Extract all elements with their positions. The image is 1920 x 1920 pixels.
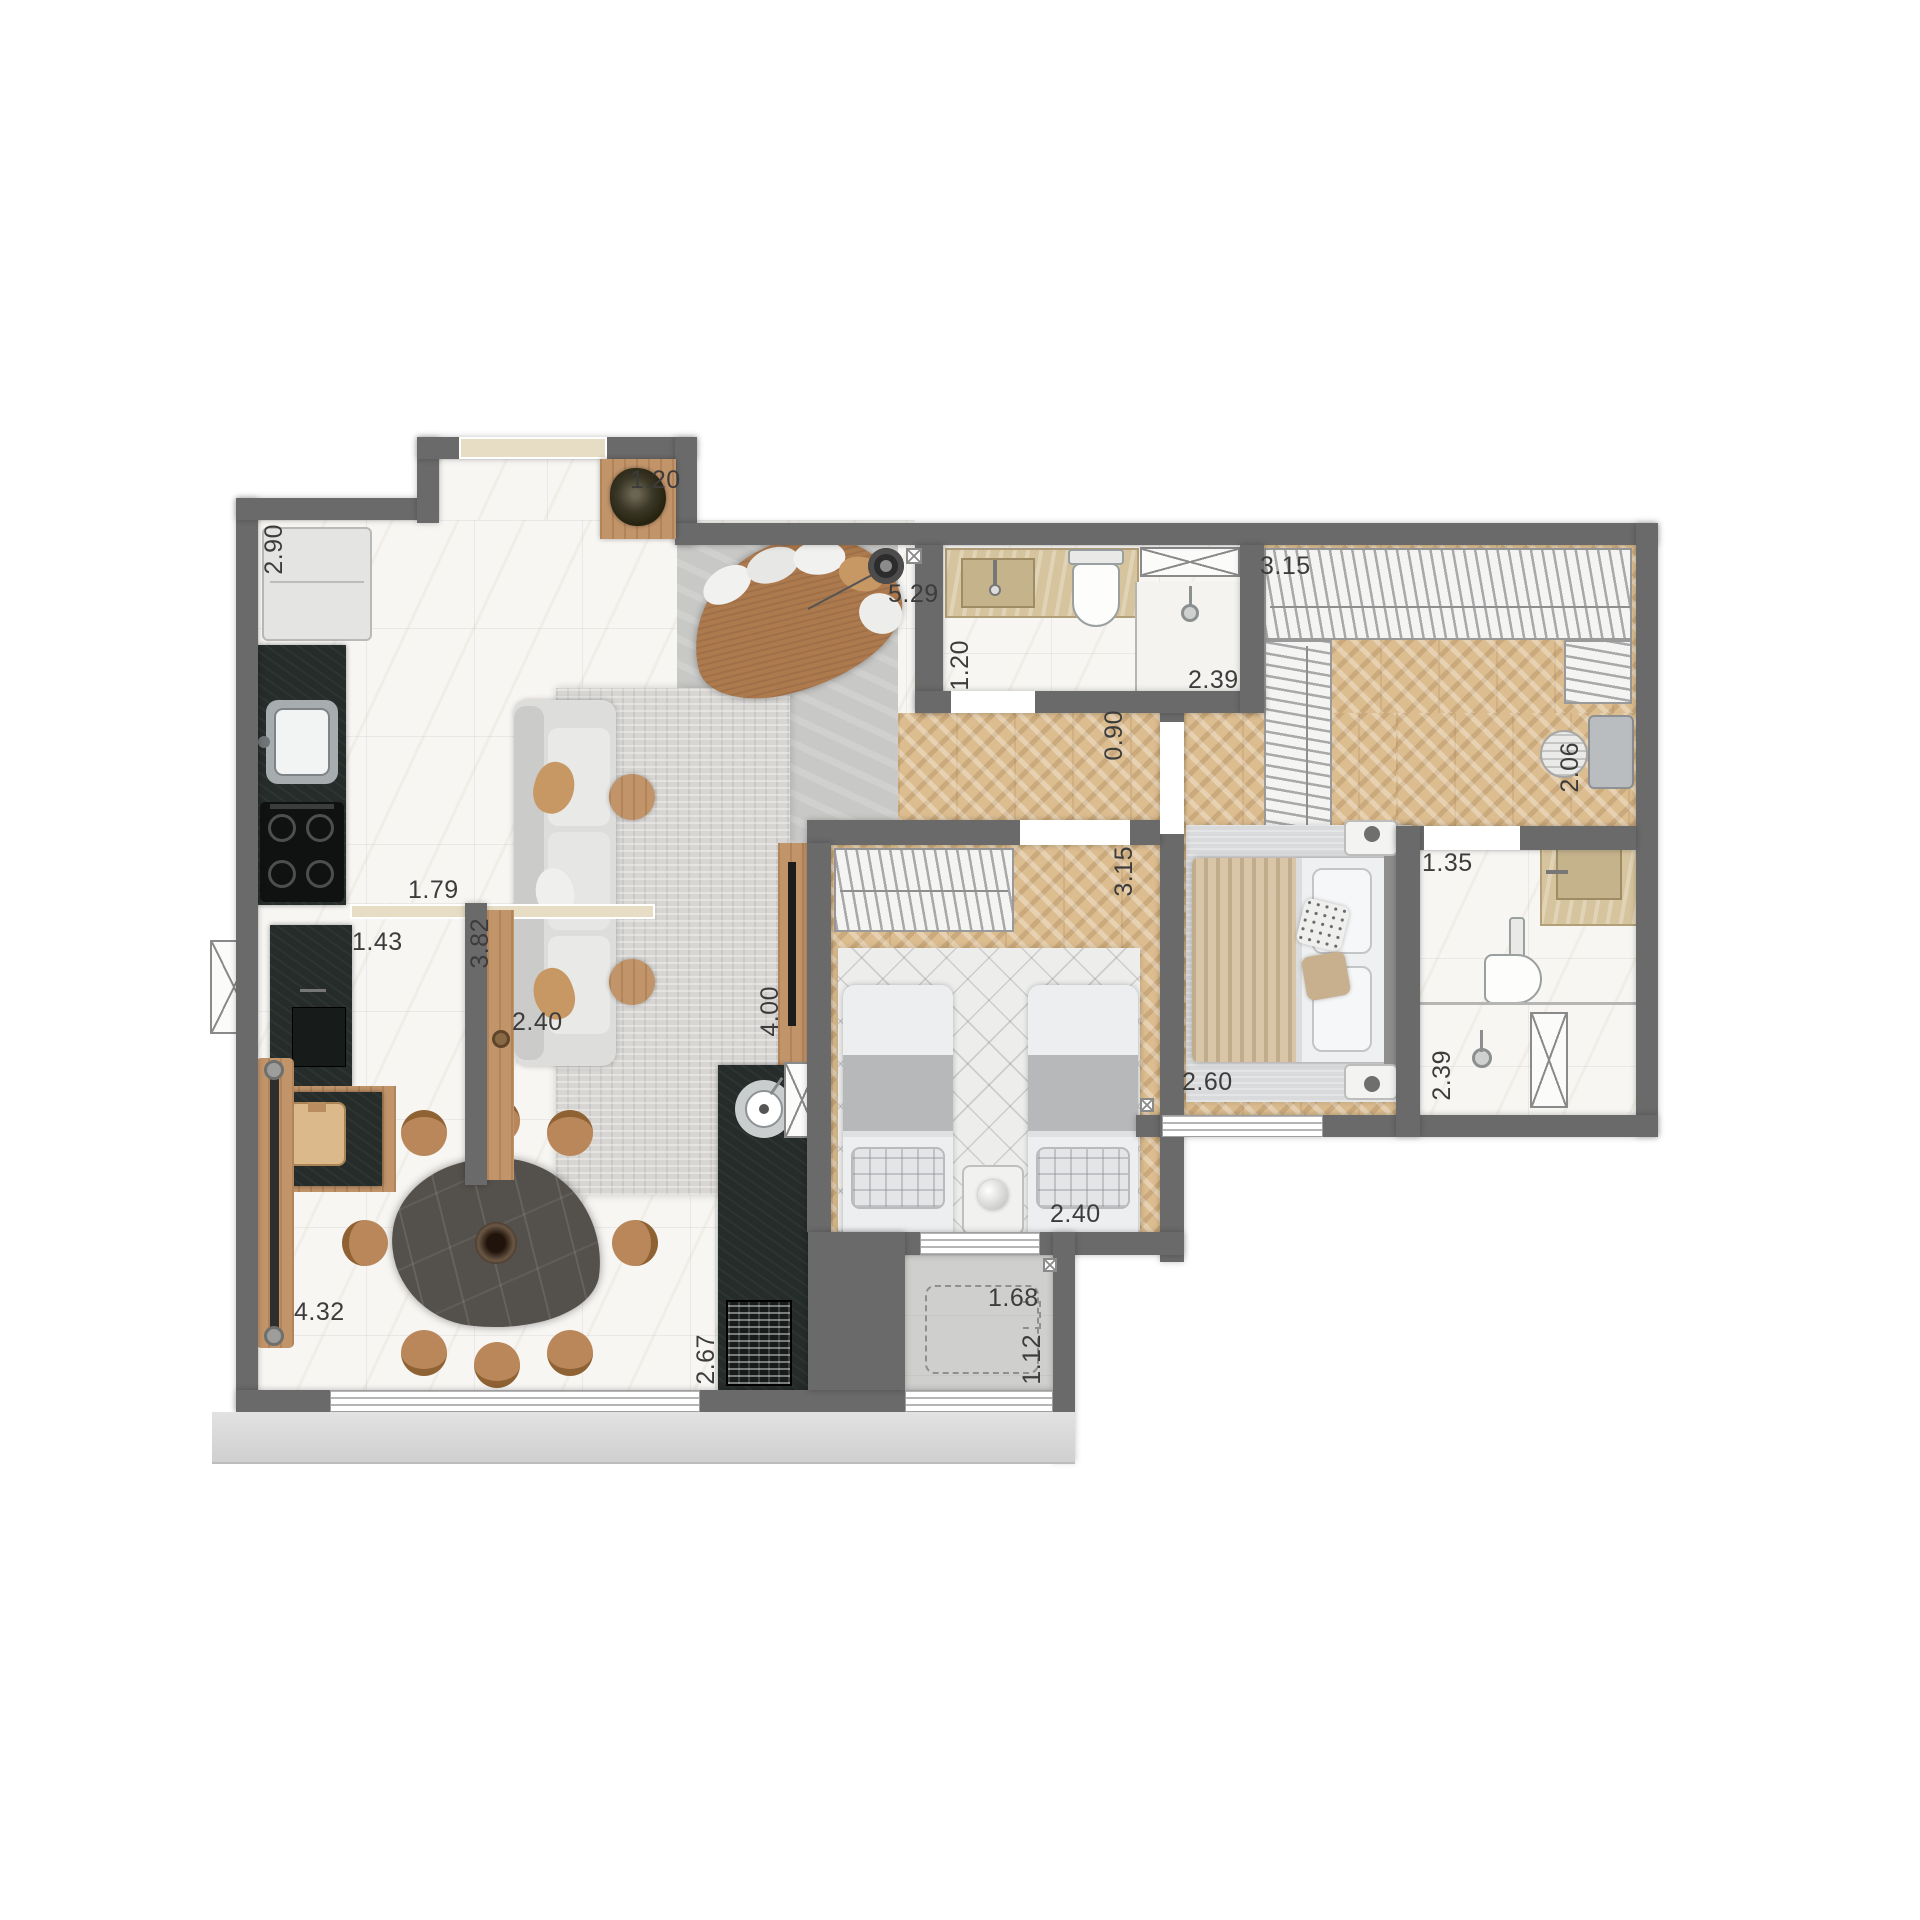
toilet-bowl	[1072, 563, 1120, 627]
dining-chair	[342, 1220, 388, 1266]
ironing-shirt-icon	[288, 1102, 346, 1166]
stove-icon	[260, 802, 344, 902]
closet-top-band	[1264, 548, 1632, 640]
shower-glass	[1420, 1002, 1636, 1005]
dim-label: 1.79	[408, 876, 459, 905]
dim-label: 3.15	[1260, 552, 1311, 581]
desk	[1588, 715, 1634, 789]
dim-label: 2.39	[1188, 666, 1239, 695]
dining-chair	[547, 1110, 593, 1156]
wall	[236, 498, 258, 1412]
bedroom2-door	[1020, 820, 1130, 845]
tan-cushion	[1301, 951, 1352, 1002]
dim-label: 1.20	[946, 640, 975, 691]
wall-marker	[1140, 1098, 1154, 1112]
wall-marker	[1043, 1258, 1057, 1272]
closet-right-band	[1564, 640, 1632, 704]
wall	[1636, 523, 1658, 1137]
dining-west-window-glass	[270, 1076, 279, 1330]
dim-label: 2.39	[1428, 1050, 1457, 1101]
wall	[675, 523, 1658, 545]
master-window	[1162, 1115, 1323, 1137]
shaft-box	[1140, 547, 1240, 577]
wall	[236, 498, 420, 520]
window-knob	[264, 1060, 284, 1080]
dining-chair	[612, 1220, 658, 1266]
dim-label: 2.90	[260, 524, 289, 575]
side-table	[609, 959, 655, 1005]
bedroom2-wardrobe	[834, 848, 1014, 932]
dim-label: 1.12	[1018, 1334, 1047, 1385]
entry-door-mat	[459, 437, 607, 459]
wall	[808, 1232, 905, 1390]
shaft-box	[1530, 1012, 1568, 1108]
grill-icon	[726, 1300, 792, 1386]
balcony-glass-rail	[905, 1390, 1053, 1412]
nightstand-lamp-icon	[1364, 826, 1380, 842]
wall	[807, 843, 831, 1232]
dining-chair	[401, 1110, 447, 1156]
dim-label: 2.67	[692, 1334, 721, 1385]
dining-sliding-window	[330, 1390, 700, 1412]
dim-label: 0.90	[1100, 710, 1129, 761]
bedroom2-window	[920, 1232, 1040, 1255]
exterior-apron	[212, 1412, 1075, 1464]
dim-label: 1.35	[1422, 849, 1473, 878]
dim-label: 2.40	[512, 1008, 563, 1037]
dim-label: 1.20	[630, 466, 681, 495]
wall-marker	[906, 548, 922, 564]
toilet-bowl	[1484, 954, 1542, 1004]
dining-chair	[474, 1342, 520, 1388]
window-knob	[264, 1326, 284, 1346]
dim-label: 2.40	[1050, 1200, 1101, 1229]
dim-label: 1.68	[988, 1284, 1039, 1313]
tv-icon	[788, 862, 796, 1026]
dim-label: 5.29	[888, 580, 939, 609]
floor-lamp-bulb	[880, 560, 892, 572]
master-bed	[1192, 858, 1398, 1062]
floor-plan-canvas: 2.90 1.20 5.29 1.79 1.43 3.82 2.40 4.00 …	[0, 0, 1920, 1920]
panel-knob	[492, 1030, 510, 1048]
dining-chair	[547, 1330, 593, 1376]
shower-head-icon	[1181, 604, 1199, 622]
dim-label: 2.06	[1556, 742, 1585, 793]
bed-throw	[1192, 858, 1296, 1062]
kitchen-sink	[266, 700, 338, 784]
wall	[915, 545, 943, 713]
nightstand-lamp-icon	[1364, 1076, 1380, 1092]
twin-bed	[1028, 985, 1138, 1235]
master-bath-door	[1424, 826, 1520, 850]
twin-bed	[843, 985, 953, 1235]
dim-label: 2.60	[1182, 1068, 1233, 1097]
wall	[1396, 826, 1420, 1137]
dim-label: 3.15	[1110, 846, 1139, 897]
dim-label: 1.43	[352, 928, 403, 957]
side-table	[609, 774, 655, 820]
sphere-lamp-icon	[978, 1180, 1008, 1210]
dim-label: 4.32	[294, 1298, 345, 1327]
bath-social-door	[951, 691, 1035, 713]
dining-chair	[401, 1330, 447, 1376]
dim-label: 4.00	[756, 986, 785, 1037]
table-centerpiece	[475, 1222, 517, 1264]
master-suite-door	[1160, 722, 1184, 834]
dim-label: 3.82	[466, 918, 495, 969]
